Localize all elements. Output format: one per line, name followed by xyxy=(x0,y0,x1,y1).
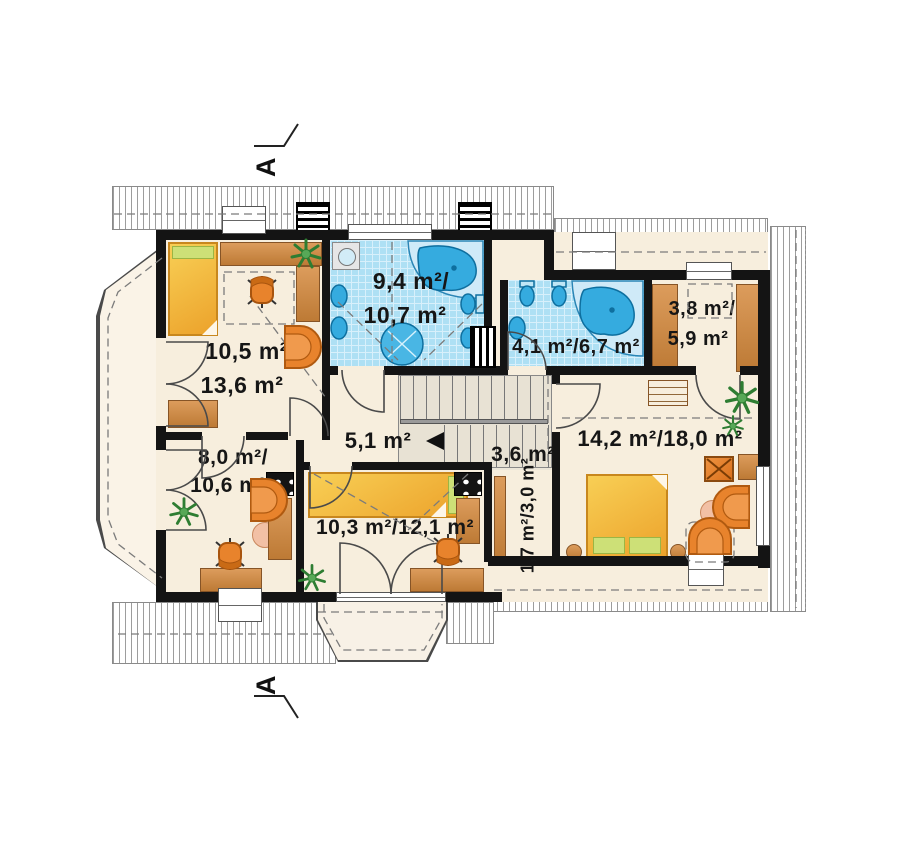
section-marker-bottom: A xyxy=(251,667,281,695)
terrace-floor xyxy=(96,246,162,590)
stair-treads-upper xyxy=(400,376,550,420)
skylight-window xyxy=(218,588,262,622)
desk-symbol xyxy=(220,242,322,266)
dresser-symbol xyxy=(648,380,688,406)
room-label-wardrobe: 5,9 m² xyxy=(656,328,740,351)
wall xyxy=(322,366,330,440)
room-label-room-bottomleft: 10,6 m² xyxy=(172,474,284,498)
balcony-floor xyxy=(316,600,448,662)
closet-panel-symbol xyxy=(494,476,506,564)
window xyxy=(348,224,432,240)
room-label-hall: 5,1 m² xyxy=(336,428,420,454)
wall xyxy=(552,374,560,384)
wall xyxy=(446,592,502,602)
double-bed-symbol xyxy=(586,474,668,560)
roof-hatch-right xyxy=(770,226,806,612)
window xyxy=(756,466,770,546)
wall xyxy=(484,470,492,562)
tall-cabinet-symbol xyxy=(268,498,292,560)
chimney-block xyxy=(458,202,492,232)
wall xyxy=(156,530,166,602)
round-table-symbol xyxy=(700,500,725,525)
game-table-symbol xyxy=(704,456,734,482)
chimney-block xyxy=(296,202,330,232)
room-label-bathroom-main: 9,4 m²/ xyxy=(352,268,470,295)
room-label-wardrobe: 3,8 m²/ xyxy=(660,298,744,321)
skylight-window xyxy=(572,232,616,270)
room-label-room-bottomleft: 8,0 m²/ xyxy=(178,446,288,470)
wall xyxy=(740,366,768,375)
balcony-door-frame xyxy=(336,592,446,602)
stair-handrail xyxy=(400,419,548,424)
wall xyxy=(296,462,310,470)
desk-return-symbol xyxy=(296,266,320,322)
wall xyxy=(724,556,768,566)
skylight-window xyxy=(688,552,724,586)
wall xyxy=(322,240,330,366)
wall xyxy=(246,432,288,440)
bidet-symbol xyxy=(552,286,566,306)
skylight-window xyxy=(222,206,266,234)
roof-hatch-bottom-mid xyxy=(446,602,494,644)
floor-plan: 10,5 m²/ 13,6 m² 9,4 m²/ 10,7 m² 4,1 m²/… xyxy=(0,0,900,844)
room-label-bedroom-topleft: 13,6 m² xyxy=(172,372,312,399)
toilet-symbol xyxy=(520,286,534,306)
sink-symbol xyxy=(331,317,347,339)
single-bed-symbol xyxy=(308,472,468,518)
cabinet-symbol xyxy=(168,400,218,428)
built-in-unit-symbol xyxy=(454,472,482,496)
room-label-bathroom-main: 10,7 m² xyxy=(346,302,464,329)
section-marker-top: A xyxy=(251,149,281,177)
wall xyxy=(156,230,166,338)
wall xyxy=(484,240,492,328)
wall xyxy=(156,432,202,440)
single-bed-symbol xyxy=(168,242,218,336)
room-label-bedroom-right: 14,2 m²/18,0 m² xyxy=(560,426,760,452)
room-label-corridor: 1,7 m²/3,0 m² xyxy=(518,442,539,590)
chimney-block xyxy=(470,326,496,368)
desk-symbol xyxy=(410,568,484,592)
sink-symbol xyxy=(331,285,347,307)
room-label-room-bottomcenter: 10,3 m²/12,1 m² xyxy=(314,516,476,540)
room-label-bathroom-small: 4,1 m²/6,7 m² xyxy=(502,336,650,359)
wall xyxy=(352,462,492,470)
room-label-bedroom-topleft: 10,5 m²/ xyxy=(180,338,320,365)
wall xyxy=(544,270,768,280)
washing-machine-symbol xyxy=(332,242,360,270)
window xyxy=(686,262,732,280)
wall xyxy=(546,366,696,375)
